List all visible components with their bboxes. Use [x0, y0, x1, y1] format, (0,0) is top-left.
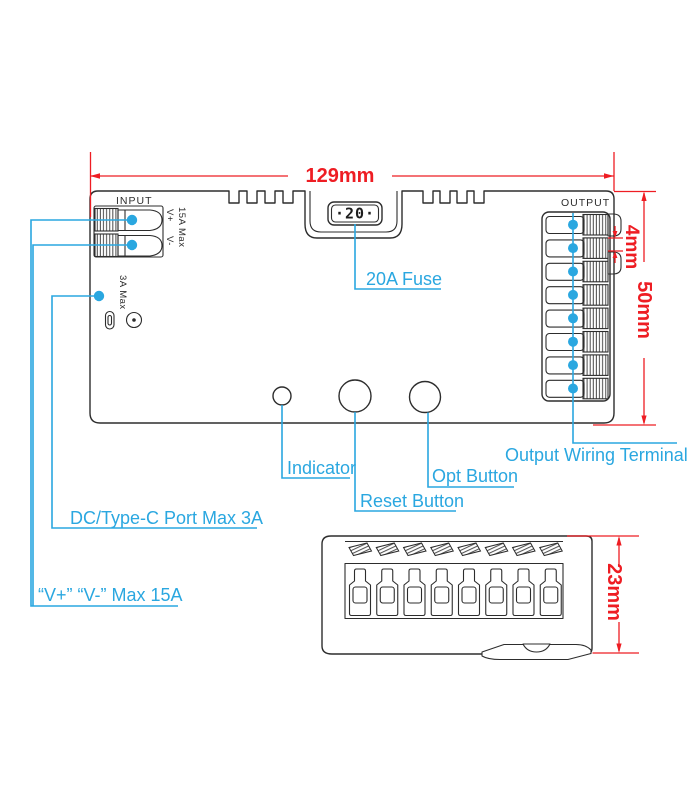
marker-dot	[127, 215, 137, 225]
marker-dot	[568, 360, 578, 370]
marker-dot	[568, 384, 578, 394]
fuse-rating-display: ·20·	[335, 205, 375, 223]
usb-max-label: 3A Max	[117, 275, 128, 310]
marker-dot	[568, 313, 578, 323]
marker-dot	[568, 243, 578, 253]
indicator-led	[273, 387, 291, 405]
v-minus-label: V-	[164, 236, 175, 246]
callout-indicator: Indicator	[287, 458, 356, 478]
callout-input-rating: “V+” “V-” Max 15A	[38, 585, 183, 605]
usb-c-port-icon	[106, 312, 115, 330]
marker-dot	[568, 290, 578, 300]
terminal-side-view	[322, 536, 592, 660]
marker-dot	[127, 240, 137, 250]
wiring-terminal-diagram: ·20· INPUT OUTPUT V+ V- 15A Max 3A Max	[0, 0, 700, 800]
output-terminal-block	[542, 212, 621, 401]
input-max-label: 15A Max	[176, 207, 187, 247]
callout-fuse: 20A Fuse	[366, 269, 442, 289]
marker-dot	[568, 267, 578, 277]
v-plus-label: V+	[164, 209, 175, 222]
input-label: INPUT	[116, 195, 153, 207]
callout-output-terminal: Output Wiring Terminal	[505, 445, 688, 465]
opt-button	[410, 382, 441, 413]
dim-output-height: 50mm	[633, 281, 655, 339]
dim-side-height: 23mm	[603, 563, 625, 621]
callout-opt: Opt Button	[432, 466, 518, 486]
marker-dot	[94, 291, 104, 301]
callout-reset: Reset Button	[360, 491, 464, 511]
dc-jack-pin	[132, 318, 136, 322]
leader-v-plus	[31, 220, 178, 606]
output-label: OUTPUT	[561, 197, 610, 209]
device-body-outline	[90, 191, 614, 423]
dim-width: 129mm	[306, 165, 375, 187]
input-terminal-block	[94, 206, 163, 257]
leader-typec	[52, 296, 257, 528]
dim-pitch: 4mm	[621, 225, 642, 269]
marker-dot	[568, 220, 578, 230]
marker-dot	[568, 337, 578, 347]
callout-typec: DC/Type-C Port Max 3A	[70, 508, 263, 528]
reset-button	[339, 380, 371, 412]
